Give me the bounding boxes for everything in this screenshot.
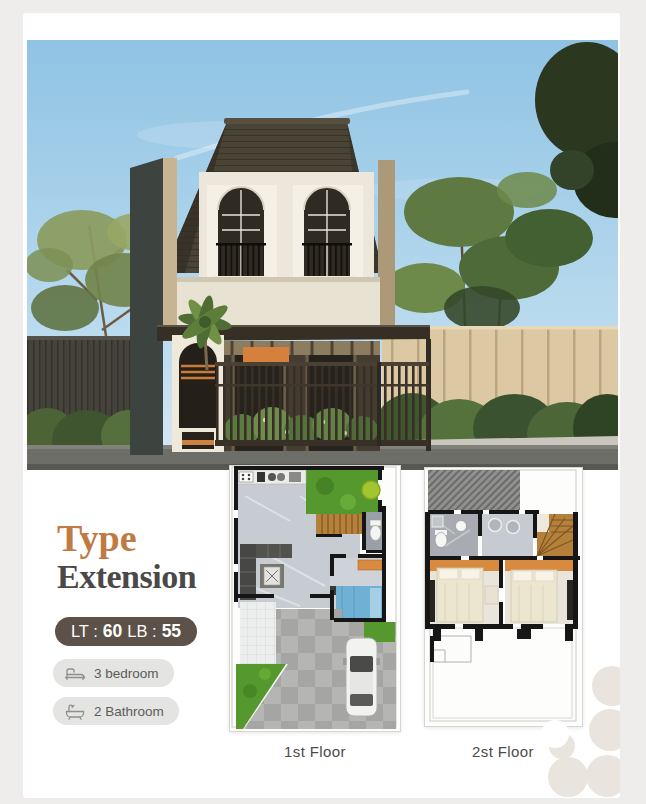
type-title-accent: Type — [57, 519, 196, 559]
bedroom-right — [505, 560, 578, 624]
arched-window-left — [207, 185, 277, 280]
lt-lb-pill: LT : 60 LB : 55 — [55, 617, 197, 646]
car — [343, 638, 380, 716]
left-pillar — [163, 158, 177, 330]
flyer-page: Type Extension LT : 60 LB : 55 3 bedroom — [0, 0, 646, 804]
wash-area — [482, 514, 533, 538]
lt-value: 60 — [103, 621, 122, 642]
type-title-name: Extension — [57, 559, 196, 594]
house-illustration — [27, 40, 618, 470]
hallway — [482, 538, 533, 556]
roof-deck — [428, 470, 520, 510]
lb-value: 55 — [162, 621, 181, 642]
bedroom-badge-label: 3 bedroom — [94, 666, 159, 681]
lt-label: LT : — [71, 622, 98, 641]
bed-icon — [64, 665, 86, 681]
front-fence — [215, 362, 429, 446]
bathroom — [430, 514, 478, 556]
title-block: Type Extension — [57, 519, 196, 594]
lb-label: LB : — [127, 622, 156, 641]
orange-accent-panel — [243, 347, 289, 364]
stairs-2 — [537, 514, 573, 556]
house — [130, 118, 431, 455]
bedroom-badge: 3 bedroom — [53, 659, 174, 687]
floor-plan-1 — [229, 465, 401, 732]
bedroom-left — [425, 560, 499, 624]
bathroom-badge-label: 2 Bathroom — [94, 704, 164, 719]
right-pillar — [378, 160, 395, 330]
decorative-blobs — [510, 628, 620, 798]
floor-label-1: 1st Floor — [230, 743, 400, 760]
kitchen — [236, 470, 306, 484]
arched-window-right — [293, 185, 363, 280]
bath-icon — [64, 703, 86, 720]
floor-plan-1-drawing — [230, 466, 398, 729]
stairs — [316, 514, 364, 534]
garden — [306, 470, 380, 514]
bathroom-badge: 2 Bathroom — [53, 697, 179, 725]
house-side-wall — [130, 158, 163, 455]
flyer-card: Type Extension LT : 60 LB : 55 3 bedroom — [23, 13, 620, 798]
terrace — [240, 602, 276, 664]
house-render-image — [27, 40, 618, 470]
